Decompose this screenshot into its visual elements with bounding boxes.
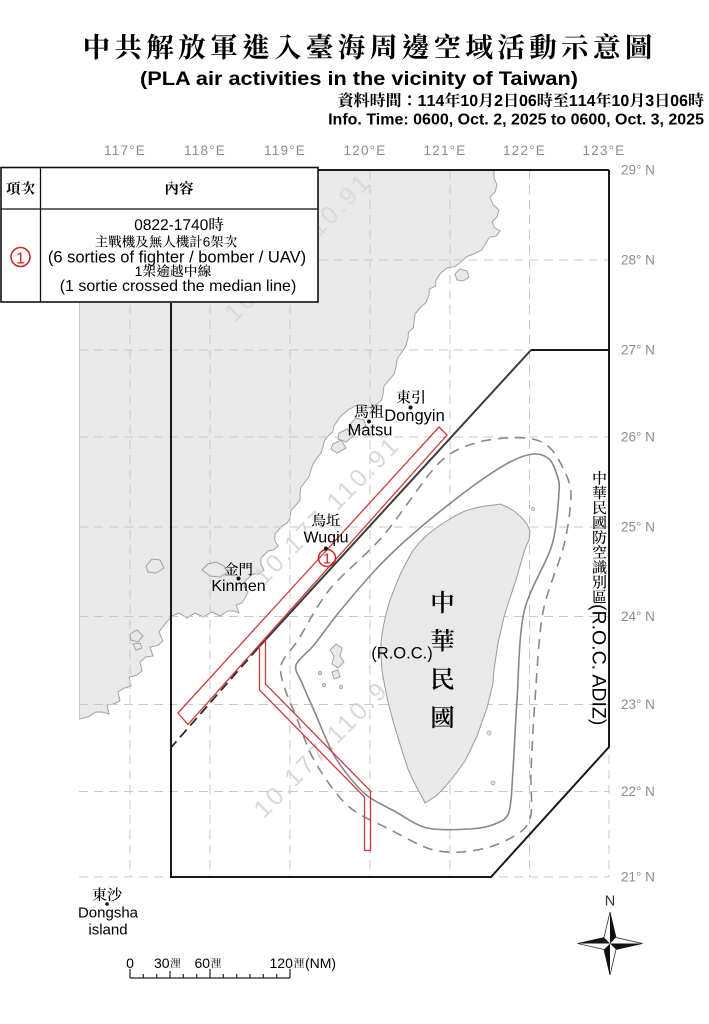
svg-text:island: island	[88, 922, 127, 939]
svg-text:27° N: 27° N	[621, 343, 655, 358]
svg-text:(6 sorties of fighter / bombe: (6 sorties of fighter / bomber / UAV)	[48, 249, 306, 267]
svg-text:117°E: 117°E	[104, 143, 146, 158]
svg-text:29° N: 29° N	[621, 163, 655, 178]
svg-text:26° N: 26° N	[621, 430, 655, 445]
svg-text:Matsu: Matsu	[348, 422, 393, 440]
svg-text:60: 60	[195, 955, 211, 971]
svg-text:Dongsha: Dongsha	[78, 905, 139, 922]
svg-text:22° N: 22° N	[621, 784, 655, 799]
svg-text:Info. Time: 0600, Oct. 2, 2025: Info. Time: 0600, Oct. 2, 2025 to 0600, …	[328, 112, 704, 129]
svg-text:120°E: 120°E	[344, 143, 387, 158]
svg-text:21° N: 21° N	[621, 870, 655, 885]
svg-text:122°E: 122°E	[503, 143, 546, 158]
svg-text:(R.O.C. ADIZ): (R.O.C. ADIZ)	[588, 604, 610, 725]
svg-text:Kinmen: Kinmen	[211, 578, 265, 595]
svg-text:121°E: 121°E	[424, 143, 467, 158]
svg-text:Dongyin: Dongyin	[384, 407, 445, 425]
svg-text:0: 0	[126, 955, 134, 971]
svg-text:120: 120	[270, 955, 294, 971]
svg-text:(NM): (NM)	[305, 955, 336, 971]
svg-text:N: N	[605, 894, 615, 910]
svg-text:24° N: 24° N	[621, 609, 655, 624]
svg-text:(PLA air activities in the vic: (PLA air activities in the vicinity of T…	[140, 68, 578, 90]
svg-text:118°E: 118°E	[184, 143, 226, 158]
svg-text:123°E: 123°E	[583, 143, 626, 158]
svg-text:25° N: 25° N	[621, 520, 655, 535]
svg-text:(R.O.C.): (R.O.C.)	[371, 645, 432, 663]
svg-text:23° N: 23° N	[621, 697, 655, 712]
svg-text:119°E: 119°E	[264, 143, 306, 158]
svg-text:30: 30	[154, 955, 170, 971]
svg-text:(1 sortie crossed the median l: (1 sortie crossed the median line)	[60, 278, 297, 295]
svg-text:28° N: 28° N	[621, 253, 655, 268]
svg-text:Wuqiu: Wuqiu	[303, 530, 348, 547]
